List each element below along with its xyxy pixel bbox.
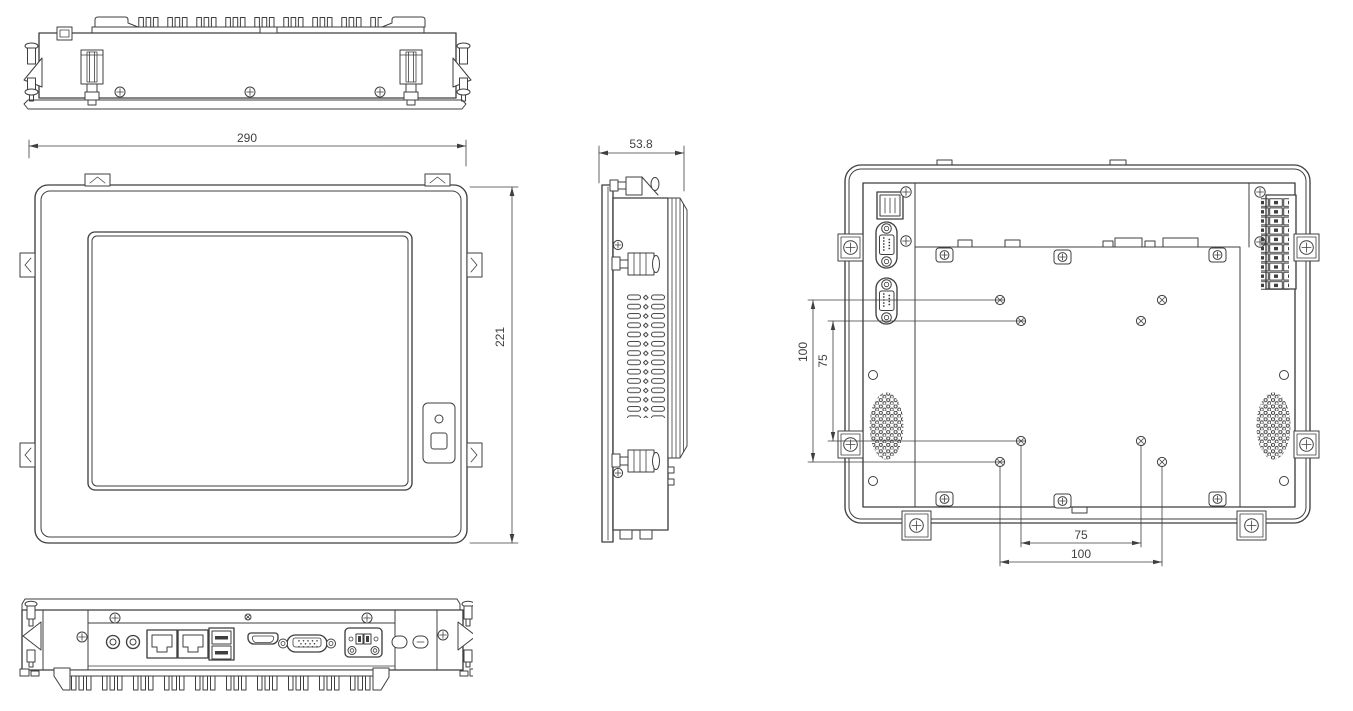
rear-view: 100 75 75 100 — [790, 155, 1353, 583]
side-front-bezel — [602, 185, 613, 542]
power-terminal-connector[interactable] — [345, 628, 382, 657]
dim-label-vesa-v-inner: 75 — [816, 354, 830, 368]
dim-label-side-depth: 53.8 — [629, 137, 653, 151]
rear-clamp-bottom-right — [1237, 511, 1266, 540]
rear-speaker-grille-right — [1257, 393, 1291, 460]
front-side-tab-left-lower — [20, 443, 35, 467]
screw-icon — [77, 632, 87, 642]
rear-clamp-left-lower — [838, 431, 863, 458]
bottom-view — [18, 595, 473, 709]
screw-icon — [362, 613, 372, 623]
bottom-front-bezel-edge — [22, 599, 460, 610]
screw-icon — [613, 468, 622, 477]
front-side-tab-right-upper — [467, 253, 482, 277]
rear-terminal-block[interactable] — [1261, 195, 1296, 290]
side-heatsink-fins — [668, 198, 687, 458]
small-screw-icon — [245, 614, 251, 620]
ethernet-port-2[interactable] — [178, 630, 208, 658]
front-top-tab-left — [85, 174, 110, 186]
audio-jack-1[interactable] — [107, 636, 120, 649]
ethernet-port-1[interactable] — [147, 630, 177, 658]
usb-stack-port[interactable] — [209, 628, 234, 660]
side-clamp-top — [610, 177, 659, 195]
dimension-width: 290 — [29, 132, 466, 166]
power-button-panel — [423, 403, 455, 463]
rear-usb-port[interactable] — [877, 192, 903, 219]
dim-label-front-width: 290 — [237, 132, 257, 145]
screw-icon — [901, 236, 911, 246]
rear-clamp-right-lower — [1294, 431, 1319, 458]
front-top-tab-right — [425, 174, 450, 186]
rear-db9-serial-port-1[interactable] — [876, 222, 897, 268]
front-side-tab-left-upper — [20, 253, 35, 277]
bottom-reset-button[interactable] — [413, 636, 428, 648]
bottom-power-button[interactable] — [392, 636, 407, 648]
front-side-tab-right-lower — [467, 443, 482, 467]
top-view — [8, 8, 510, 112]
screw-icon — [1255, 187, 1265, 197]
rear-clamp-left-upper — [838, 234, 863, 261]
screw-icon — [110, 613, 120, 623]
screw-icon — [375, 87, 385, 97]
screw-icon — [438, 630, 448, 640]
technical-drawing-canvas: 290 221 — [0, 0, 1353, 711]
display-screen — [88, 232, 412, 490]
front-view: 290 221 — [10, 132, 555, 555]
dim-label-vesa-h-inner: 75 — [1074, 528, 1088, 542]
dim-label-vesa-v-outer: 100 — [796, 342, 810, 362]
rear-clamp-bottom-left — [902, 511, 931, 540]
hdmi-port[interactable] — [248, 633, 278, 644]
dim-label-front-height: 221 — [493, 327, 507, 347]
dimension-height: 221 — [470, 187, 518, 543]
rear-speaker-grille-left — [870, 393, 904, 460]
top-heatsink-comb — [92, 17, 425, 34]
bottom-heatsink-comb — [54, 668, 389, 691]
side-view: 53.8 — [588, 133, 753, 553]
screw-icon — [901, 187, 911, 197]
side-vent-holes — [627, 293, 665, 418]
dim-label-vesa-h-outer: 100 — [1071, 547, 1091, 561]
rear-clamp-right-upper — [1294, 234, 1319, 261]
audio-jack-2[interactable] — [127, 636, 140, 649]
rear-db9-serial-port-2[interactable] — [876, 278, 897, 324]
screw-icon — [613, 240, 622, 249]
screw-icon — [115, 87, 125, 97]
screw-icon — [245, 87, 255, 97]
